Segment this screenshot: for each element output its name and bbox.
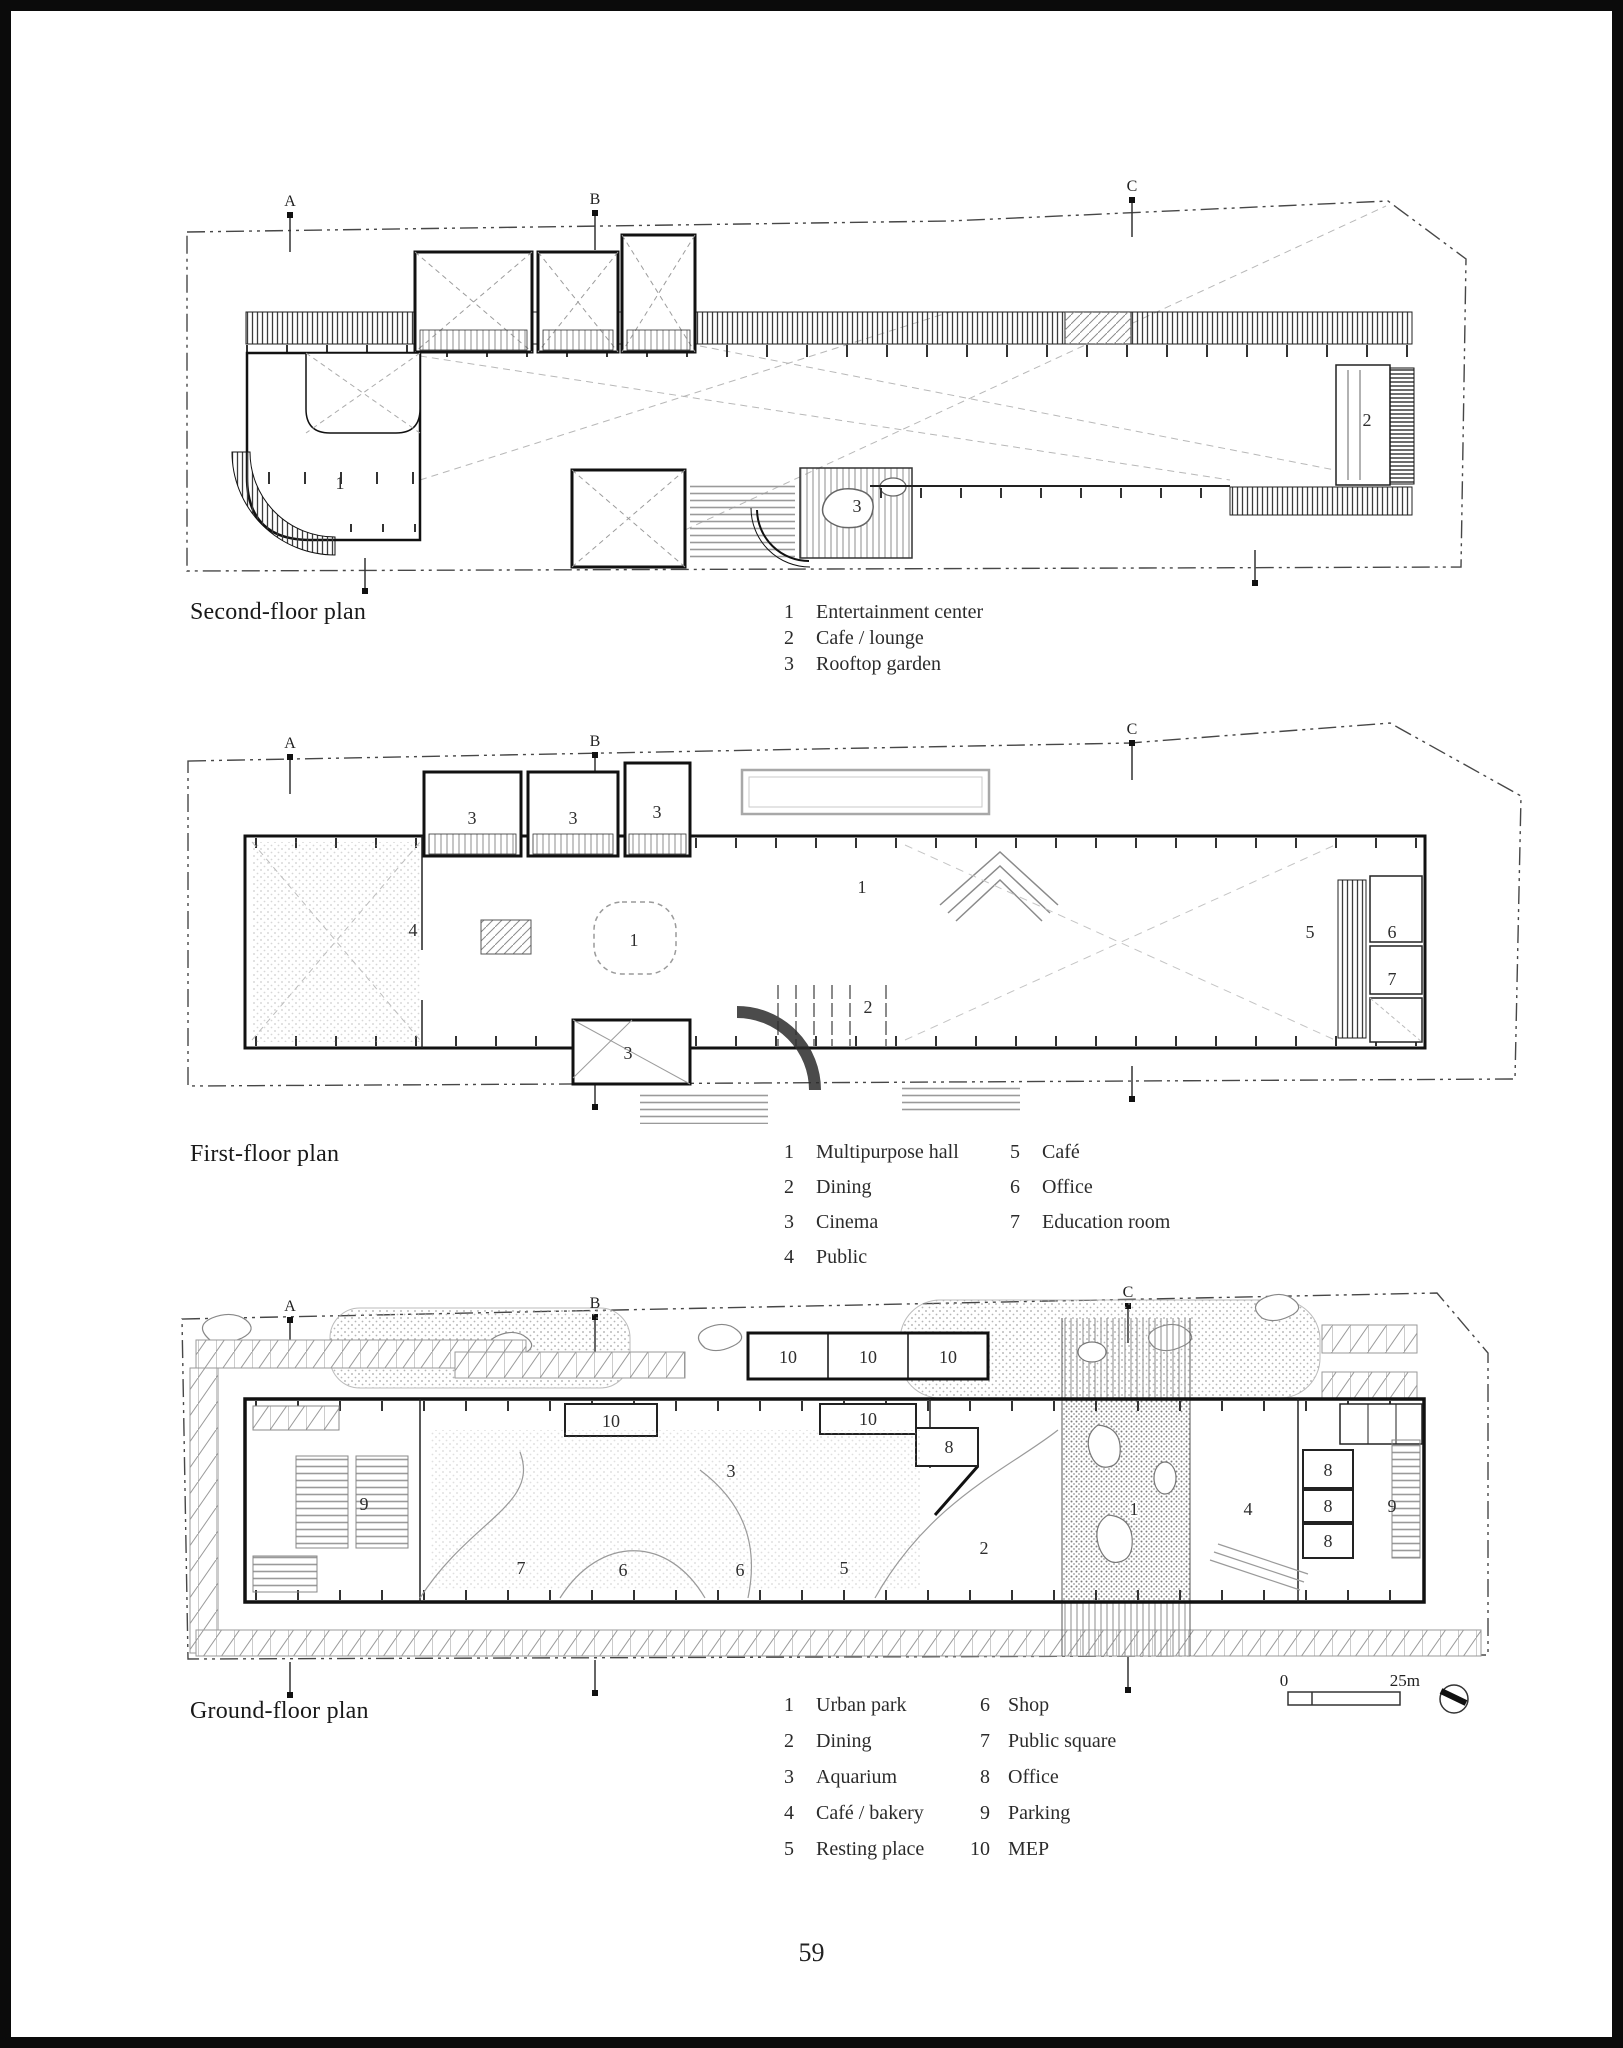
- legend-row: 6Shop: [962, 1694, 1116, 1730]
- page-number: 59: [0, 1938, 1623, 1968]
- room-label: 3: [727, 1461, 736, 1481]
- legend-number: 8: [962, 1766, 990, 1789]
- room-label: 9: [1388, 1496, 1397, 1516]
- room-label: 8: [1324, 1496, 1333, 1516]
- grid-letter: A: [284, 1298, 296, 1315]
- legend-number: 6: [992, 1176, 1020, 1199]
- legend-label: Entertainment center: [816, 601, 983, 624]
- grid-letters-1f: ABC: [284, 721, 1137, 752]
- room-label: 9: [360, 1494, 369, 1514]
- room-label: 10: [939, 1347, 957, 1367]
- room-label: 2: [1363, 410, 1372, 430]
- room-labels-2f: 123: [336, 410, 1372, 516]
- entertainment-center-room: [232, 353, 420, 555]
- legend-row: 2Cafe / lounge: [766, 627, 983, 653]
- second-floor-plan-drawing: ABC 123: [187, 178, 1466, 594]
- grid-letter: B: [590, 191, 601, 208]
- legend-number: 1: [766, 1694, 794, 1717]
- room-label: 7: [517, 1558, 526, 1578]
- room-label: 4: [1244, 1499, 1253, 1519]
- legend-label: Cafe / lounge: [816, 627, 924, 650]
- legend-row: 9Parking: [962, 1802, 1116, 1838]
- room-label: 10: [779, 1347, 797, 1367]
- pool-outline: [742, 770, 989, 814]
- legend-row: 2Dining: [766, 1176, 959, 1211]
- legend-label: Cinema: [816, 1211, 878, 1234]
- grid-letter: C: [1127, 178, 1138, 195]
- legend-row: 7Public square: [962, 1730, 1116, 1766]
- room-label: 1: [858, 877, 867, 897]
- cafe-lounge-block: [870, 365, 1414, 515]
- room-label: 8: [1324, 1531, 1333, 1551]
- scale-zero-label: 0: [1280, 1671, 1289, 1690]
- room-label: 3: [468, 808, 477, 828]
- urban-park-band: [1062, 1318, 1190, 1656]
- legend-label: Rooftop garden: [816, 653, 941, 676]
- legend-number: 7: [992, 1211, 1020, 1234]
- legend-label: Multipurpose hall: [816, 1141, 959, 1164]
- first-floor-plan-drawing: ABC 33341123567: [188, 721, 1521, 1124]
- legend-label: Public square: [1008, 1730, 1116, 1753]
- north-arrow-icon: [1440, 1685, 1468, 1713]
- room-label: 5: [840, 1558, 849, 1578]
- legend-row: 3Cinema: [766, 1211, 959, 1246]
- room-label: 6: [736, 1560, 745, 1580]
- legend-label: Urban park: [816, 1694, 907, 1717]
- terrace-steps: [690, 482, 795, 558]
- book-page: ABC 123: [0, 0, 1623, 2048]
- legend-label: MEP: [1008, 1838, 1049, 1861]
- legend-label: Café / bakery: [816, 1802, 924, 1825]
- grid-letters-2f: ABC: [284, 178, 1137, 210]
- room-label: 3: [653, 802, 662, 822]
- legend-row: 1Multipurpose hall: [766, 1141, 959, 1176]
- cafe-office-education: [1338, 876, 1422, 1042]
- legend-number: 9: [962, 1802, 990, 1825]
- room-label: 1: [630, 930, 639, 950]
- legend-row: 7Education room: [992, 1211, 1170, 1246]
- legend-number: 6: [962, 1694, 990, 1717]
- legend-row: 4Public: [766, 1246, 959, 1281]
- legend-label: Public: [816, 1246, 867, 1269]
- legend-ground-floor-col2: 6Shop7Public square8Office9Parking10MEP: [962, 1694, 1116, 1874]
- legend-ground-floor-col1: 1Urban park2Dining3Aquarium4Café / baker…: [766, 1694, 924, 1874]
- legend-row: 10MEP: [962, 1838, 1116, 1874]
- first-floor-plan-title: First-floor plan: [190, 1141, 339, 1168]
- legend-row: 2Dining: [766, 1730, 924, 1766]
- room-label: 2: [864, 997, 873, 1017]
- room-label: 5: [1306, 922, 1315, 942]
- second-floor-plan-title: Second-floor plan: [190, 599, 366, 626]
- legend-row: 5Resting place: [766, 1838, 924, 1874]
- legend-number: 4: [766, 1246, 794, 1269]
- room-label: 1: [1130, 1499, 1139, 1519]
- ground-floor-plan-title: Ground-floor plan: [190, 1698, 369, 1725]
- legend-number: 3: [766, 1211, 794, 1234]
- room-label: 3: [624, 1043, 633, 1063]
- legend-label: Shop: [1008, 1694, 1049, 1717]
- legend-number: 3: [766, 1766, 794, 1789]
- legend-number: 5: [992, 1141, 1020, 1164]
- legend-number: 2: [766, 627, 794, 650]
- skylight-box: [572, 470, 685, 567]
- legend-label: Parking: [1008, 1802, 1070, 1825]
- grid-letter: A: [284, 735, 296, 752]
- legend-row: 8Office: [962, 1766, 1116, 1802]
- room-label: 6: [619, 1560, 628, 1580]
- legend-row: 1Entertainment center: [766, 601, 983, 627]
- room-label: 10: [859, 1409, 877, 1429]
- grid-letter: C: [1127, 721, 1138, 738]
- room-label: 7: [1388, 969, 1397, 989]
- ground-floor-plan-drawing: ABC 101010101083914888976652: [182, 1284, 1488, 1698]
- legend-row: 1Urban park: [766, 1694, 924, 1730]
- legend-label: Resting place: [816, 1838, 924, 1861]
- roof-volumes: [415, 235, 695, 352]
- legend-number: 2: [766, 1176, 794, 1199]
- grid-letter: B: [590, 1295, 601, 1312]
- diagonal-hatch-segment: [1065, 312, 1131, 344]
- scale-max-label: 25m: [1390, 1671, 1420, 1690]
- legend-label: Office: [1008, 1766, 1059, 1789]
- grid-letter: A: [284, 193, 296, 210]
- room-label: 2: [980, 1538, 989, 1558]
- legend-label: Dining: [816, 1176, 872, 1199]
- legend-number: 10: [962, 1838, 990, 1861]
- legend-label: Aquarium: [816, 1766, 897, 1789]
- grid-letter: C: [1123, 1284, 1134, 1301]
- legend-number: 3: [766, 653, 794, 676]
- room-label: 10: [859, 1347, 877, 1367]
- room-label: 3: [853, 496, 862, 516]
- room-label: 10: [602, 1411, 620, 1431]
- cinema-volumes: [424, 763, 690, 856]
- legend-first-floor-col2: 5Café6Office7Education room: [992, 1141, 1170, 1246]
- room-label: 8: [945, 1437, 954, 1457]
- legend-label: Café: [1042, 1141, 1080, 1164]
- legend-second-floor: 1Entertainment center2Cafe / lounge3Roof…: [766, 601, 983, 679]
- legend-label: Dining: [816, 1730, 872, 1753]
- legend-row: 3Aquarium: [766, 1766, 924, 1802]
- legend-number: 1: [766, 1141, 794, 1164]
- legend-number: 4: [766, 1802, 794, 1825]
- scale-bar: 0 25m: [1280, 1671, 1420, 1705]
- room-label: 6: [1388, 922, 1397, 942]
- room-label: 4: [409, 920, 418, 940]
- legend-row: 4Café / bakery: [766, 1802, 924, 1838]
- legend-number: 1: [766, 601, 794, 624]
- room-label: 1: [336, 473, 345, 493]
- legend-label: Office: [1042, 1176, 1093, 1199]
- room-label: 3: [569, 808, 578, 828]
- grid-letter: B: [590, 733, 601, 750]
- room-label: 8: [1324, 1460, 1333, 1480]
- legend-number: 7: [962, 1730, 990, 1753]
- legend-row: 6Office: [992, 1176, 1170, 1211]
- legend-first-floor-col1: 1Multipurpose hall2Dining3Cinema4Public: [766, 1141, 959, 1281]
- legend-label: Education room: [1042, 1211, 1170, 1234]
- legend-row: 3Rooftop garden: [766, 653, 983, 679]
- legend-row: 5Café: [992, 1141, 1170, 1176]
- legend-number: 5: [766, 1838, 794, 1861]
- legend-number: 2: [766, 1730, 794, 1753]
